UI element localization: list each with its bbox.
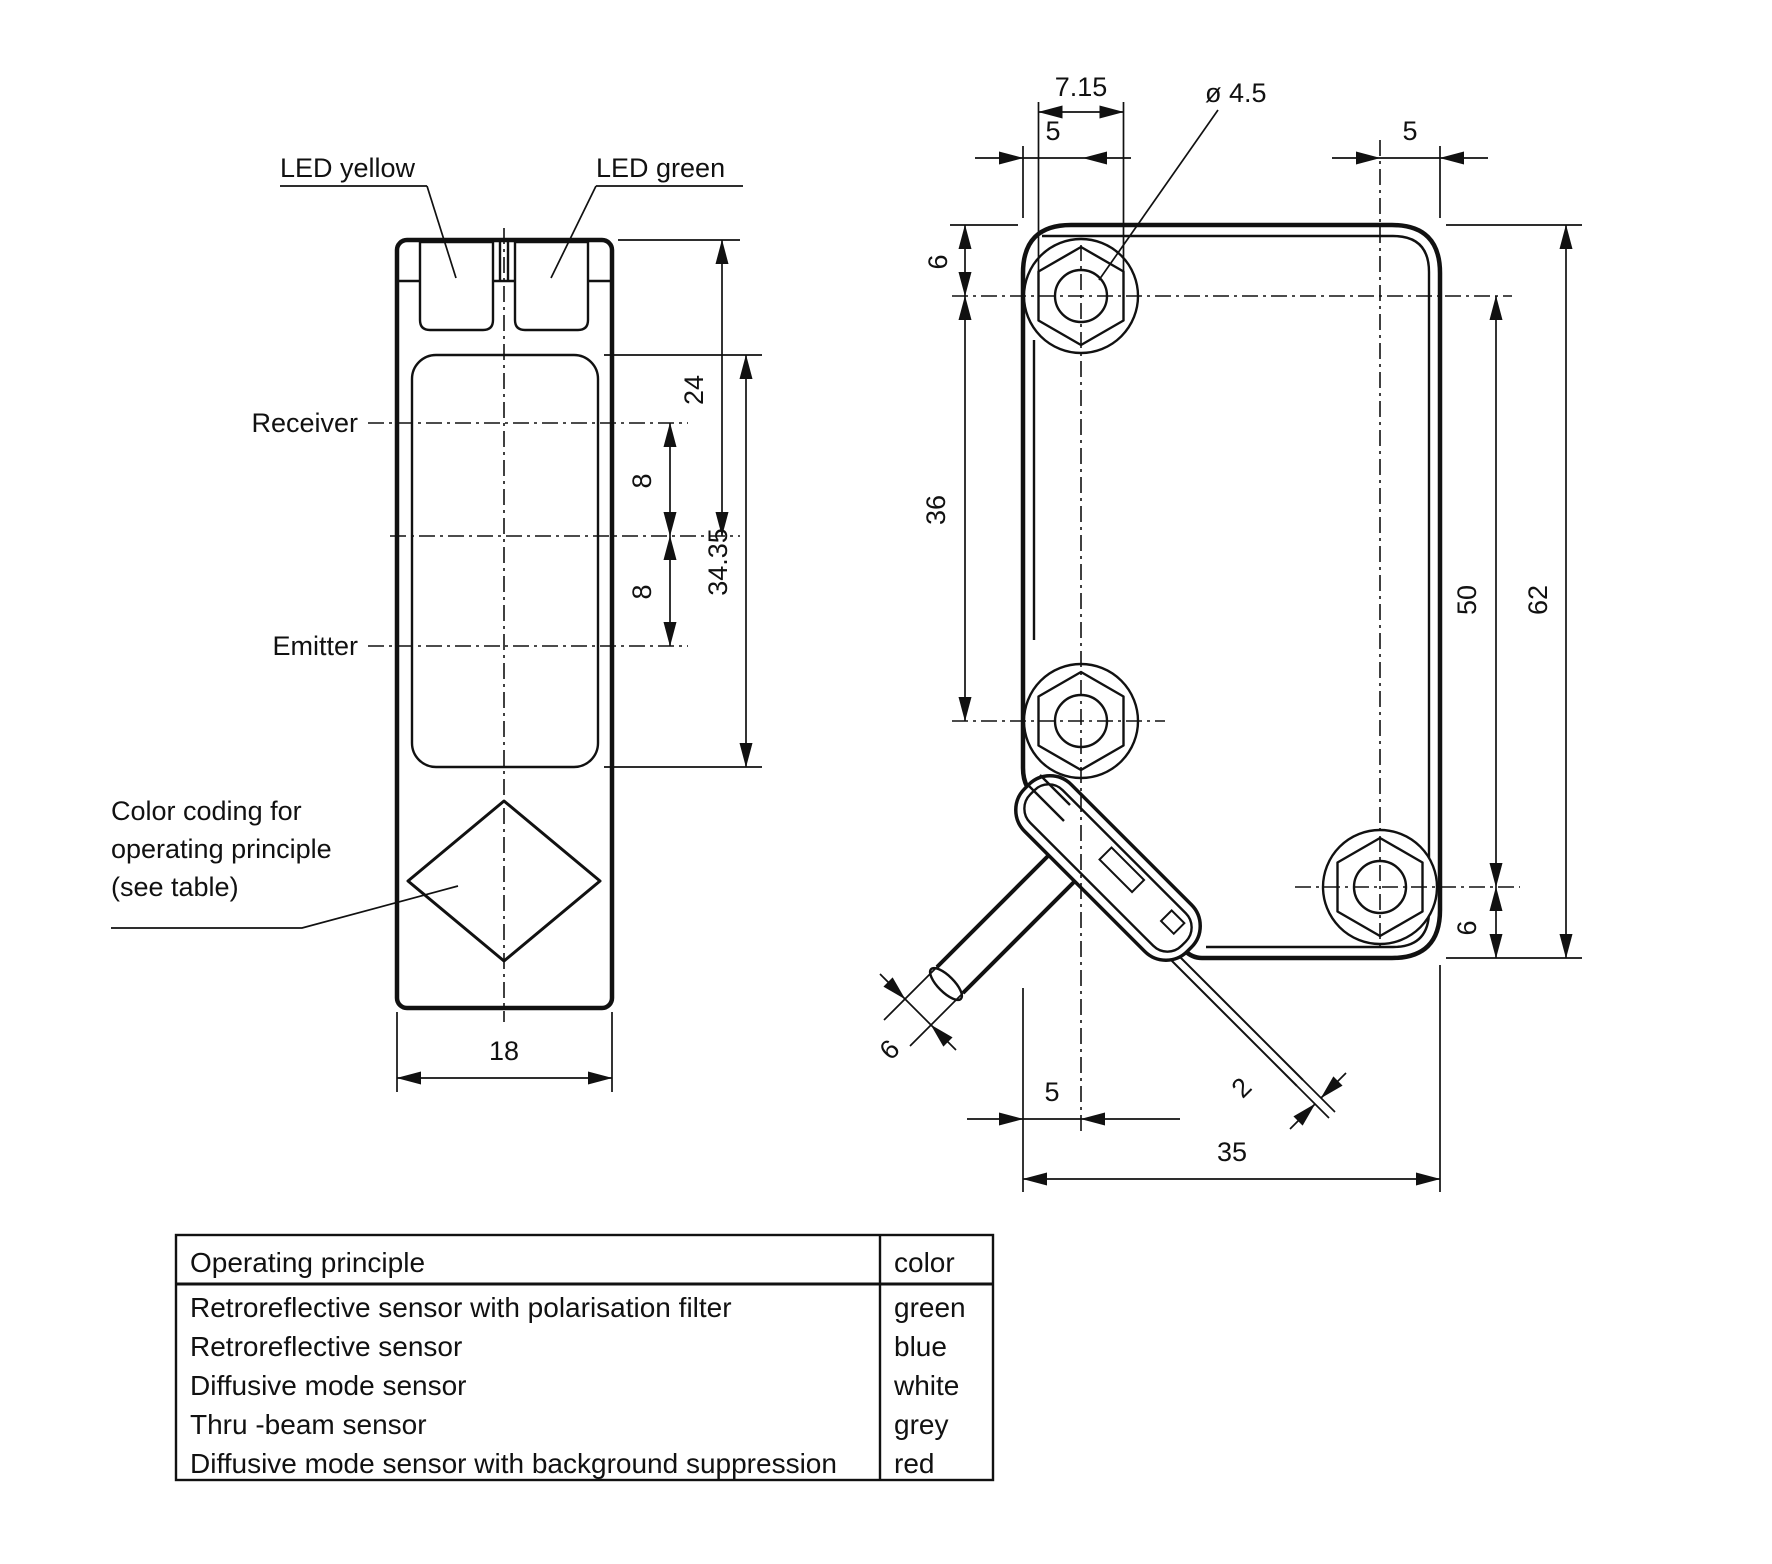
led-window-yellow <box>420 242 493 330</box>
svg-text:ø 4.5: ø 4.5 <box>1205 78 1267 108</box>
table-cell-principle: Diffusive mode sensor with background su… <box>190 1448 837 1479</box>
svg-text:18: 18 <box>489 1036 519 1066</box>
table-header-principle: Operating principle <box>190 1247 425 1278</box>
led-yellow-label: LED yellow <box>280 153 416 183</box>
dimension-24: 24 <box>618 240 740 536</box>
dimension-8-upper: 8 <box>627 423 670 536</box>
svg-text:36: 36 <box>921 495 951 525</box>
table-cell-color: blue <box>894 1331 947 1362</box>
table-row: Retroreflective sensor blue <box>190 1331 947 1362</box>
svg-text:50: 50 <box>1452 585 1482 615</box>
svg-text:62: 62 <box>1523 585 1553 615</box>
receiver-label: Receiver <box>251 408 358 438</box>
svg-text:5: 5 <box>1044 1077 1059 1107</box>
svg-text:5: 5 <box>1045 116 1060 146</box>
svg-text:6: 6 <box>923 254 953 269</box>
cable-2mm <box>1169 952 1303 1086</box>
dimension-36: 36 <box>921 296 965 721</box>
dimension-5-top-right: 5 <box>1332 116 1488 218</box>
svg-text:35: 35 <box>1217 1137 1247 1167</box>
table-cell-principle: Thru -beam sensor <box>190 1409 427 1440</box>
table-cell-color: green <box>894 1292 966 1323</box>
dimension-6-bottom-right: 6 <box>1452 887 1496 958</box>
lens-window <box>412 355 598 767</box>
svg-text:6: 6 <box>1452 920 1482 935</box>
svg-text:8: 8 <box>627 584 657 599</box>
table-cell-color: red <box>894 1448 934 1479</box>
table-cell-principle: Retroreflective sensor with polarisation… <box>190 1292 732 1323</box>
dimension-50: 50 <box>1452 296 1496 887</box>
svg-text:5: 5 <box>1402 116 1417 146</box>
svg-text:34.35: 34.35 <box>703 528 733 596</box>
table-cell-color: grey <box>894 1409 948 1440</box>
table-cell-principle: Retroreflective sensor <box>190 1331 462 1362</box>
table-cell-color: white <box>893 1370 959 1401</box>
dimension-18: 18 <box>397 1012 612 1092</box>
table-header-color: color <box>894 1247 955 1278</box>
operating-principle-table: Operating principle color Retroreflectiv… <box>176 1235 993 1480</box>
dimension-5-bottom: 5 <box>967 988 1180 1192</box>
color-coding-note-line2: operating principle <box>111 834 332 864</box>
technical-drawing-page: LED yellow LED green Receiver Emitter Co… <box>0 0 1772 1559</box>
sensor-dimension-drawing: LED yellow LED green Receiver Emitter Co… <box>0 0 1772 1559</box>
dimension-5-top-left: 5 <box>975 116 1131 218</box>
led-green-label: LED green <box>596 153 725 183</box>
table-row: Retroreflective sensor with polarisation… <box>190 1292 966 1323</box>
dimension-2-wire: 2 <box>1226 1072 1346 1129</box>
front-view: LED yellow LED green Receiver Emitter Co… <box>111 153 762 1092</box>
table-row: Diffusive mode sensor white <box>190 1370 959 1401</box>
svg-text:8: 8 <box>627 473 657 488</box>
dimension-34-35: 34.35 <box>604 355 762 767</box>
svg-text:6: 6 <box>874 1034 906 1066</box>
dimension-8-lower: 8 <box>627 536 670 646</box>
svg-text:24: 24 <box>679 375 709 405</box>
side-view: 7.15 5 ø 4.5 5 6 <box>874 72 1582 1192</box>
svg-text:2: 2 <box>1226 1072 1258 1104</box>
color-coding-note-line3: (see table) <box>111 872 239 902</box>
cable-cut-end <box>925 963 966 1004</box>
svg-text:7.15: 7.15 <box>1055 72 1108 102</box>
table-row: Diffusive mode sensor with background su… <box>190 1448 934 1479</box>
dimension-6-top-left: 6 <box>923 225 1018 296</box>
color-coding-note-line1: Color coding for <box>111 796 302 826</box>
table-row: Thru -beam sensor grey <box>190 1409 948 1440</box>
table-cell-principle: Diffusive mode sensor <box>190 1370 467 1401</box>
led-window-green <box>515 242 588 330</box>
emitter-label: Emitter <box>272 631 358 661</box>
